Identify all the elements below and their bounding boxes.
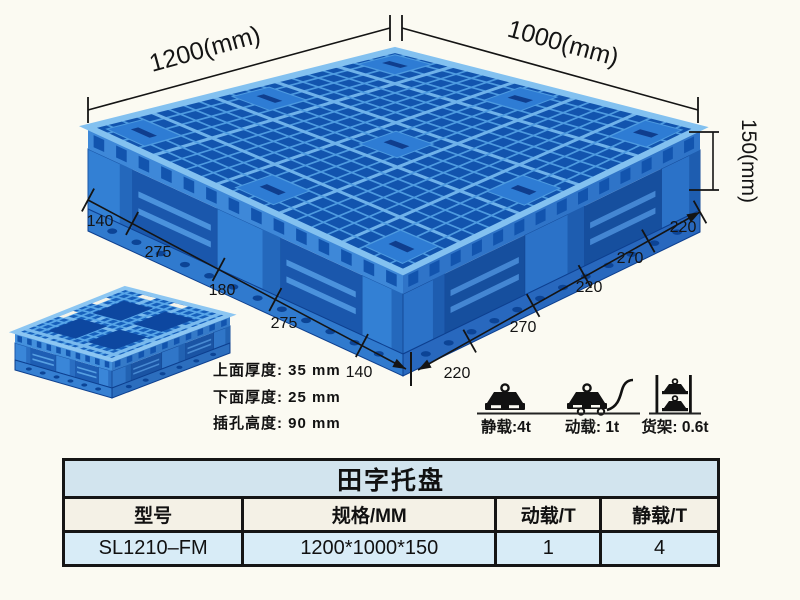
small-pallet-photo	[15, 288, 230, 398]
cell-dynamic-load: 1	[497, 533, 602, 564]
dim-seg-right-3: 270	[510, 319, 537, 336]
header-spec: 规格/MM	[244, 499, 497, 530]
rack-load-shelf-icon	[656, 375, 692, 414]
note-top-thickness: 上面厚度: 35 mm	[213, 359, 341, 380]
dim-seg-left-1: 275	[145, 244, 172, 261]
static-load-label: 静载:4t	[481, 417, 531, 436]
dim-seg-left-3: 275	[271, 315, 298, 332]
dynamic-load-trolley-icon	[567, 380, 633, 415]
note-bottom-thickness: 下面厚度: 25 mm	[213, 386, 341, 407]
header-dynamic-load: 动载/T	[497, 499, 602, 530]
table-header-row: 型号 规格/MM 动载/T 静载/T	[65, 499, 717, 533]
rack-load-label: 货架: 0.6t	[641, 417, 708, 436]
figure-drawing-layer	[15, 15, 719, 398]
dynamic-load-label: 动载: 1t	[565, 418, 619, 436]
dim-seg-left-2: 180	[209, 282, 236, 299]
cell-static-load: 4	[602, 533, 717, 564]
product-sheet: 1200(mm) 1000(mm) 150(mm) 140 275 180 27…	[0, 0, 800, 600]
table-title: 田字托盘	[65, 461, 717, 499]
table-data-row: SL1210–FM 1200*1000*150 1 4	[65, 533, 717, 564]
dim-seg-right-2: 220	[576, 279, 603, 296]
dim-seg-right-0: 220	[670, 219, 697, 236]
spec-table: 田字托盘 型号 规格/MM 动载/T 静载/T SL1210–FM 1200*1…	[62, 458, 720, 567]
dim-seg-right-1: 270	[617, 250, 644, 267]
dim-seg-right-4: 220	[444, 365, 471, 382]
cell-spec: 1200*1000*150	[244, 533, 497, 564]
header-model: 型号	[65, 499, 244, 530]
dim-label-1200: 1200(mm)	[146, 21, 263, 78]
static-load-weight-icon	[485, 384, 525, 410]
dim-seg-left-4: 140	[346, 364, 373, 381]
note-fork-height: 插孔高度: 90 mm	[213, 412, 341, 433]
cell-model: SL1210–FM	[65, 533, 244, 564]
header-static-load: 静载/T	[602, 499, 717, 530]
dim-seg-left-0: 140	[87, 213, 114, 230]
dim-label-1000: 1000(mm)	[504, 15, 621, 72]
dim-label-150: 150(mm)	[737, 119, 760, 203]
pallet-illustration: 1200(mm) 1000(mm) 150(mm) 140 275 180 27…	[0, 0, 800, 455]
